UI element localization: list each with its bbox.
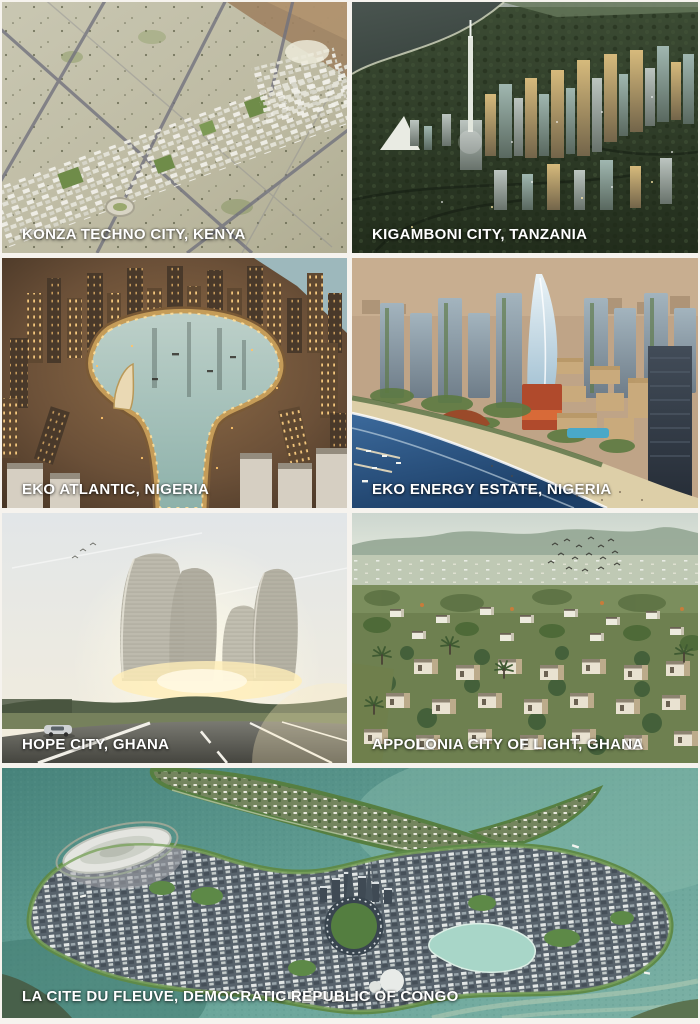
panel-eko-atlantic: EKO ATLANTIC, NIGERIA (2, 258, 347, 508)
panel-caption: KONZA TECHNO CITY, KENYA (22, 226, 246, 243)
eko-energy-beachfront-render-image (352, 258, 698, 508)
panel-caption: APPOLONIA CITY OF LIGHT, GHANA (372, 736, 644, 753)
panel-caption: HOPE CITY, GHANA (22, 736, 169, 753)
appolonia-suburb-render-image (352, 513, 698, 763)
panel-caption: EKO ENERGY ESTATE, NIGERIA (372, 481, 612, 498)
panel-caption: EKO ATLANTIC, NIGERIA (22, 481, 209, 498)
panel-caption: KIGAMBONI CITY, TANZANIA (372, 226, 587, 243)
konza-aerial-render-image (2, 2, 347, 253)
panel-caption: LA CITE DU FLEUVE, DEMOCRATIC REPUBLIC O… (22, 988, 459, 1005)
panel-eko-energy-estate: EKO ENERGY ESTATE, NIGERIA (352, 258, 698, 508)
eko-atlantic-night-render-image (2, 258, 347, 508)
panel-la-cite-du-fleuve: LA CITE DU FLEUVE, DEMOCRATIC REPUBLIC O… (2, 768, 698, 1018)
panel-kigamboni-city: KIGAMBONI CITY, TANZANIA (352, 2, 698, 253)
la-cite-du-fleuve-island-render-image (2, 768, 698, 1018)
panel-appolonia-city-of-light: APPOLONIA CITY OF LIGHT, GHANA (352, 513, 698, 763)
kigamboni-dusk-render-image (352, 2, 698, 253)
african-new-cities-collage: KONZA TECHNO CITY, KENYA (0, 0, 700, 1024)
panel-konza-techno-city: KONZA TECHNO CITY, KENYA (2, 2, 347, 253)
panel-hope-city: HOPE CITY, GHANA (2, 513, 347, 763)
hope-city-towers-render-image (2, 513, 347, 763)
